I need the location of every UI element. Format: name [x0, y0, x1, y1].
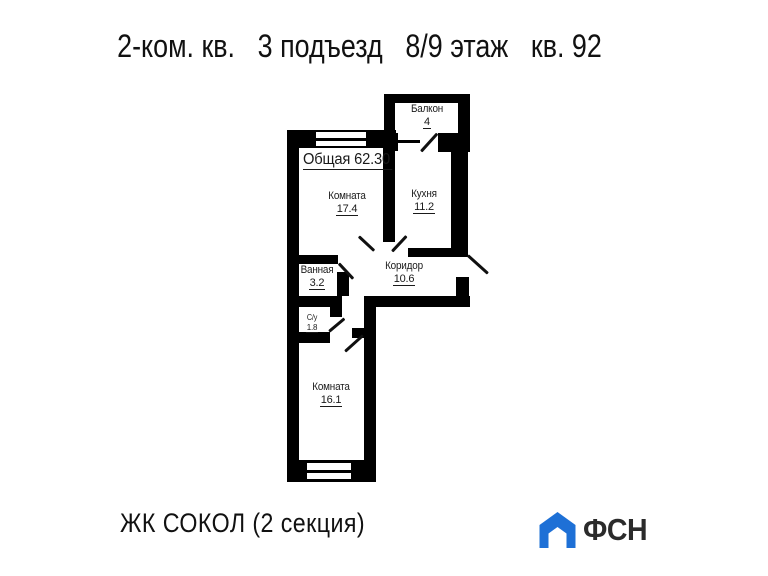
room-area: 1.8: [296, 323, 328, 332]
wall-balcony-right: [458, 94, 470, 152]
door-swing-entrance: [467, 254, 489, 274]
room-name: Комната: [300, 381, 363, 393]
window-frame-line: [316, 138, 366, 141]
wall-wc-bottom: [287, 332, 330, 343]
wall-wc-right: [330, 296, 342, 317]
room-label-kitchen: Кухня 11.2: [394, 188, 454, 214]
door-swing-balcony: [420, 133, 438, 153]
room-area: 17.4: [312, 203, 382, 216]
room-area: 3.2: [292, 277, 342, 290]
project-title: ЖК СОКОЛ (2 секция): [120, 508, 365, 538]
door-swing-wc: [328, 317, 345, 332]
room-label-balcony: Балкон 4: [397, 103, 457, 129]
room-area: 11.2: [394, 201, 454, 214]
window-frame-line: [307, 470, 351, 473]
room-name: Коридор: [373, 260, 436, 272]
room-name: Балкон: [400, 103, 454, 115]
floor-plan-page: 2-ком. кв. 3 подъезд 8/9 этаж кв. 92: [0, 0, 768, 576]
title-apartment-number: кв. 92: [530, 29, 601, 63]
room-label-room2: Комната 16.1: [296, 381, 366, 407]
door-swing-room1: [358, 235, 375, 251]
room-label-bathroom: Ванная 3.2: [292, 264, 342, 290]
total-area-label: Общая 62.30: [303, 151, 392, 168]
title-floor: 8/9 этаж: [405, 29, 508, 63]
wall-kitchen-top-b: [438, 133, 458, 152]
title-rooms-count: 2-ком. кв.: [117, 29, 235, 63]
room-name: Комната: [316, 190, 379, 202]
wall-corridor-bottom: [364, 296, 470, 307]
house-icon: [539, 512, 576, 548]
window-symbol-room2: [307, 463, 351, 479]
window-symbol-room1: [316, 132, 366, 146]
room-label-room1: Комната 17.4: [312, 190, 382, 216]
room-area: 16.1: [296, 394, 366, 407]
room-name: Ванная: [295, 264, 340, 276]
room-area: 4: [397, 116, 457, 129]
room-name: С/у: [298, 313, 327, 322]
logo-text: ФСН: [583, 512, 647, 548]
window-frame-line: [398, 140, 420, 143]
room-name: Кухня: [397, 188, 451, 200]
title-entrance: 3 подъезд: [257, 29, 382, 63]
page-title: 2-ком. кв. 3 подъезд 8/9 этаж кв. 92: [0, 29, 768, 63]
wall-entry-corner: [456, 277, 469, 297]
window-symbol-kitchen: [398, 134, 420, 149]
room-label-wc: С/у 1.8: [296, 313, 328, 332]
wall-kitchen-bottom: [408, 248, 452, 257]
developer-logo: ФСН: [539, 512, 653, 548]
room-label-corridor: Коридор 10.6: [369, 260, 439, 286]
room-area: 10.6: [369, 273, 439, 286]
wall-room1-bottom: [287, 255, 338, 264]
